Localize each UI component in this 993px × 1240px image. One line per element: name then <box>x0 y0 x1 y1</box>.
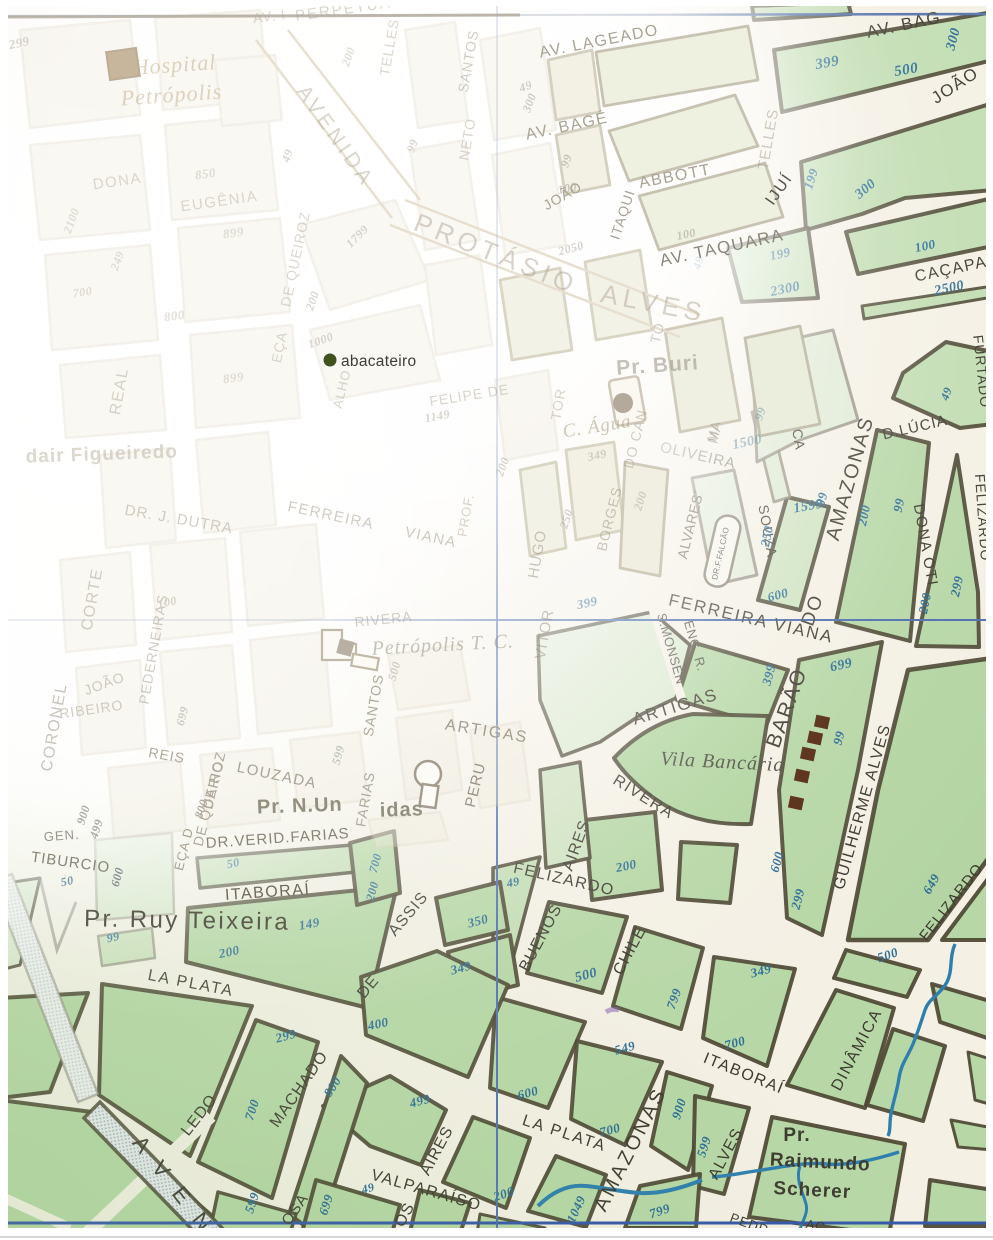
svg-text:850: 850 <box>194 165 217 183</box>
svg-text:899: 899 <box>222 369 245 387</box>
svg-text:899: 899 <box>222 224 245 242</box>
svg-text:abacateiro: abacateiro <box>341 353 416 370</box>
svg-text:Pr. Ruy Teixeira: Pr. Ruy Teixeira <box>84 905 290 936</box>
svg-text:Pr. N.Un: Pr. N.Un <box>257 794 344 819</box>
svg-text:GEN.: GEN. <box>43 827 80 844</box>
svg-text:idas: idas <box>379 798 424 822</box>
svg-text:800: 800 <box>163 307 186 325</box>
svg-text:700: 700 <box>72 284 93 301</box>
